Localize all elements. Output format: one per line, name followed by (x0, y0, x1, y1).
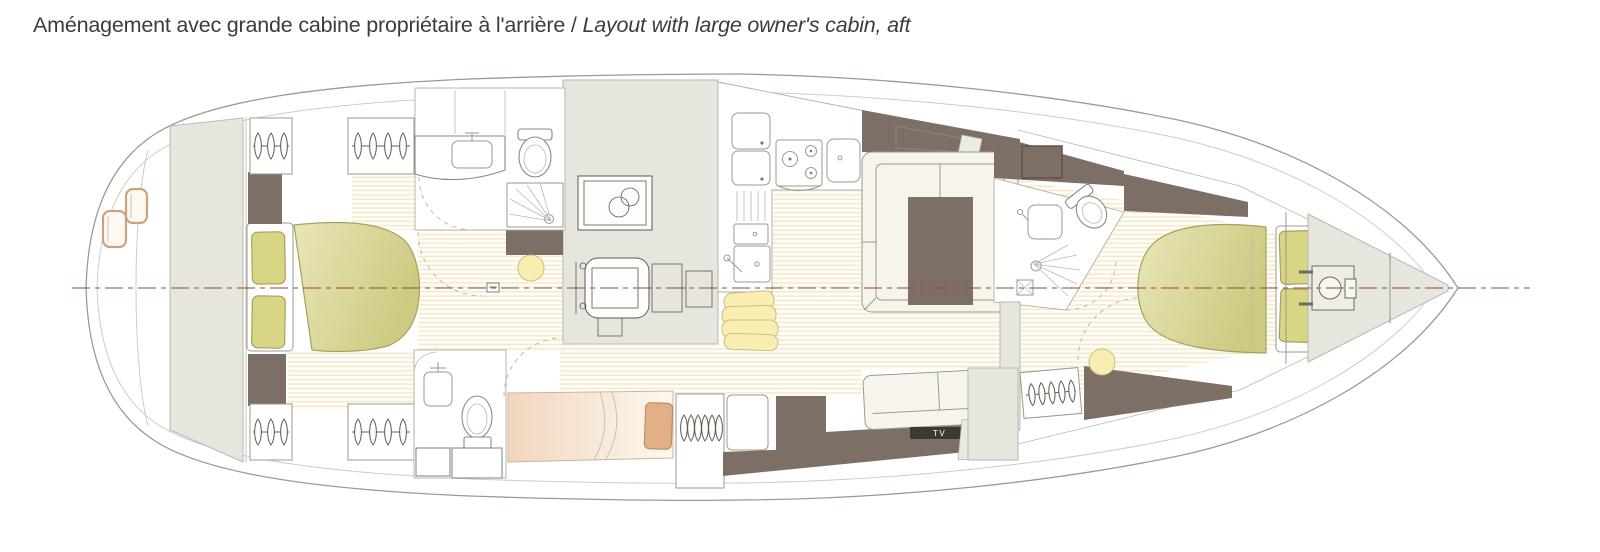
saloon-table-icon (908, 197, 973, 305)
pillow-icon (252, 232, 286, 285)
cabinet (506, 228, 563, 255)
stool-icon (518, 255, 544, 281)
wardrobe-hangers (676, 394, 724, 488)
boat-layout-page: Aménagement avec grande cabine propriéta… (0, 0, 1600, 552)
cockpit-transom-panel (170, 118, 243, 462)
seat (727, 395, 768, 450)
boat-layout-plan: TV (0, 0, 1600, 552)
generator-icon (578, 176, 652, 230)
aft-port-head (414, 350, 506, 478)
tv-label: TV (933, 429, 946, 438)
pillow-icon (644, 403, 673, 450)
engine-room (563, 80, 718, 344)
wardrobe-hangers (250, 404, 292, 460)
owner-bed-icon (294, 223, 419, 352)
wardrobe-hangers (250, 118, 292, 174)
locker (248, 172, 282, 224)
cabinet (452, 448, 502, 478)
toilet-icon (518, 129, 552, 177)
wardrobe-hangers (1020, 368, 1082, 419)
cushion-stack (722, 290, 779, 351)
wardrobe-hangers (348, 404, 414, 460)
stool-icon (1089, 349, 1115, 375)
locker (248, 354, 286, 406)
cabinet (416, 448, 450, 476)
pillow-icon (252, 296, 286, 349)
wardrobe-hangers (348, 118, 414, 174)
toilet-icon (462, 396, 492, 450)
aft-head (415, 88, 565, 230)
locker (1022, 146, 1062, 178)
cabinet (776, 396, 826, 450)
